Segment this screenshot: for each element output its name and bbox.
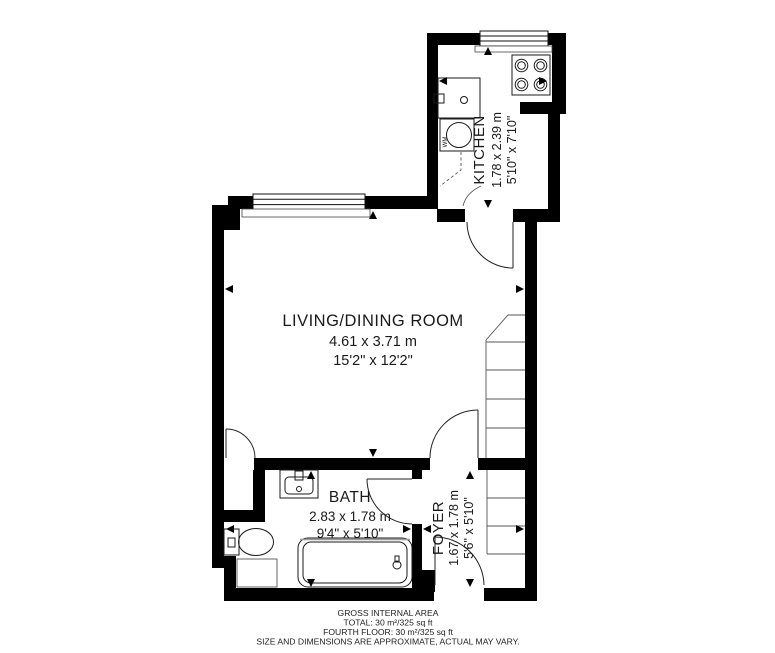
burner-icon: [537, 62, 545, 70]
footer-disclaimer: GROSS INTERNAL AREA TOTAL: 30 m²/325 sq …: [256, 608, 519, 647]
toilet-cistern: [224, 529, 239, 555]
dim-arrow-bath-up: [307, 471, 315, 479]
burner-icon: [515, 78, 528, 91]
dim-arrow-living-down: [369, 449, 377, 457]
burner-icon: [534, 59, 547, 72]
kitchen-sink-drain: [461, 97, 468, 104]
dim-arrow-bath-right: [403, 525, 411, 533]
wall-living-bottom-b: [478, 458, 525, 470]
footer-disclaimer-text: SIZE AND DIMENSIONS ARE APPROXIMATE, ACT…: [256, 637, 519, 647]
dim-arrow-foyer-down: [466, 579, 474, 587]
kitchen-counter-dashed: [440, 152, 461, 186]
dim-arrow-living-left: [225, 285, 233, 293]
room-label-living: LIVING/DINING ROOM: [282, 312, 463, 330]
wall-bath-foyer-foot: [412, 570, 435, 592]
room-dim-bath-metric: 2.83 x 1.78 m: [309, 509, 391, 524]
kitchen-window: [480, 31, 548, 46]
dim-arrow-kitchen-down: [484, 200, 492, 208]
room-dim-bath-imperial: 9'4" x 5'10": [317, 526, 384, 541]
floorplan-canvas: WM: [0, 0, 775, 653]
wall-left: [212, 205, 224, 568]
dim-arrow-foyer-up: [466, 471, 474, 479]
wall-bottom-left-of-entry: [224, 588, 434, 601]
bathtub-inner: [303, 542, 407, 583]
room-dim-foyer-imperial: 5'6" x 5'10": [462, 497, 476, 559]
living-foyer-door-arc: [430, 410, 478, 458]
footer-total: TOTAL: 30 m²/325 sq ft: [344, 618, 434, 628]
kitchen-counter-end-line: [463, 186, 481, 206]
bath-sink-drain: [297, 487, 302, 492]
bath-sink-tap: [295, 471, 303, 480]
wall-bath-foyer-top: [412, 458, 422, 479]
wardrobe-shelving: [486, 315, 525, 554]
room-label-kitchen: KITCHEN: [471, 115, 488, 184]
kitchen-door-arc: [467, 222, 513, 268]
room-label-bath: BATH: [329, 489, 371, 506]
wall-kitchen-right-upper: [552, 33, 566, 114]
washing-machine-label: WM: [443, 137, 449, 148]
wall-living-bottom-a: [254, 458, 430, 470]
footer-gross-internal-area: GROSS INTERNAL AREA: [338, 608, 439, 618]
toilet-bowl: [239, 529, 274, 556]
room-dim-kitchen-imperial: 5'10" x 7'10": [505, 116, 519, 185]
dim-arrow-living-right: [516, 285, 524, 293]
wall-kitchen-living-b: [513, 209, 560, 222]
burner-icon: [515, 59, 528, 72]
floorplan-svg: WM: [0, 0, 775, 653]
room-dim-kitchen-metric: 1.78 x 2.39 m: [490, 112, 504, 188]
footer-floor: FOURTH FLOOR: 30 m²/325 sq ft: [323, 627, 453, 637]
room-dim-living-metric: 4.61 x 3.71 m: [329, 334, 417, 350]
room-label-foyer: FOYER: [430, 501, 447, 555]
burner-icon: [518, 62, 526, 70]
wall-right: [525, 209, 537, 601]
closet-door-arc: [226, 429, 255, 458]
living-window-sill: [242, 209, 370, 217]
wall-closet-bottom: [224, 510, 265, 522]
room-dim-foyer-metric: 1.67 x 1.78 m: [447, 490, 461, 566]
burner-icon: [518, 81, 526, 89]
bath-floor-step: [237, 559, 277, 587]
wall-kitchen-left: [427, 33, 438, 209]
living-window: [253, 194, 365, 210]
room-dim-living-imperial: 15'2" x 12'2": [333, 353, 413, 369]
wall-bath-foyer-mid: [412, 524, 422, 570]
wall-kitchen-living-a: [437, 209, 465, 222]
wall-kitchen-right-lower: [548, 102, 560, 222]
stove-burners: [515, 59, 547, 91]
dim-arrow-bath-left: [226, 525, 234, 533]
washing-machine-door: [447, 123, 472, 148]
wardrobe-top-diagonal: [486, 315, 525, 340]
toilet-flush: [228, 538, 235, 547]
